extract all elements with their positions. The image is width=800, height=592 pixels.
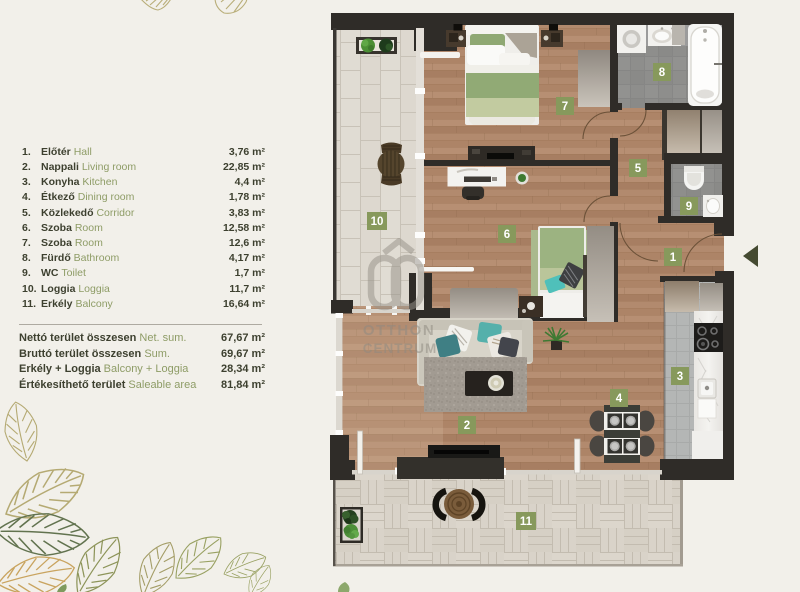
svg-text:CENTRUM: CENTRUM xyxy=(363,341,438,356)
svg-text:10: 10 xyxy=(371,216,384,228)
svg-text:Nettó terület összesen Net. su: Nettó terület összesen Net. sum. xyxy=(19,332,187,344)
svg-text:6.: 6. xyxy=(22,222,31,234)
svg-text:69,67 m²: 69,67 m² xyxy=(221,348,265,360)
svg-text:OTTHON: OTTHON xyxy=(363,322,435,339)
svg-text:7: 7 xyxy=(562,101,568,113)
svg-text:10.: 10. xyxy=(22,283,37,295)
svg-text:Értékesíthető terület Saleable: Értékesíthető terület Saleable area xyxy=(19,378,197,391)
svg-text:12,6 m²: 12,6 m² xyxy=(229,237,266,249)
svg-text:4: 4 xyxy=(616,393,623,405)
svg-text:WC Toilet: WC Toilet xyxy=(41,267,86,279)
svg-text:2: 2 xyxy=(464,420,470,432)
svg-text:Előtér Hall: Előtér Hall xyxy=(41,146,92,158)
svg-text:3,83 m²: 3,83 m² xyxy=(229,207,266,219)
svg-text:Loggia Loggia: Loggia Loggia xyxy=(41,283,110,295)
svg-text:Erkély + Loggia Balcony + Logg: Erkély + Loggia Balcony + Loggia xyxy=(19,363,189,375)
svg-text:3,76 m²: 3,76 m² xyxy=(229,146,266,158)
svg-text:Közlekedő Corridor: Közlekedő Corridor xyxy=(41,207,135,219)
svg-text:Nappali Living room: Nappali Living room xyxy=(41,161,136,173)
svg-text:9.: 9. xyxy=(22,267,31,279)
svg-text:1: 1 xyxy=(670,252,677,264)
svg-text:9: 9 xyxy=(686,201,692,213)
svg-text:67,67 m²: 67,67 m² xyxy=(221,332,265,344)
svg-text:5: 5 xyxy=(635,163,642,175)
svg-text:4.: 4. xyxy=(22,191,31,203)
svg-text:11,7 m²: 11,7 m² xyxy=(229,283,265,295)
svg-text:28,34 m²: 28,34 m² xyxy=(221,363,265,375)
svg-text:Étkező Dining room: Étkező Dining room xyxy=(41,190,135,203)
svg-text:16,64 m²: 16,64 m² xyxy=(223,298,266,310)
svg-text:11: 11 xyxy=(520,516,533,528)
svg-text:1,78 m²: 1,78 m² xyxy=(229,191,266,203)
svg-text:6: 6 xyxy=(504,229,510,241)
svg-text:1,7 m²: 1,7 m² xyxy=(235,267,266,279)
svg-text:7.: 7. xyxy=(22,237,31,249)
svg-text:12,58 m²: 12,58 m² xyxy=(223,222,266,234)
svg-text:8: 8 xyxy=(659,67,666,79)
svg-text:Fürdő Bathroom: Fürdő Bathroom xyxy=(41,252,119,264)
svg-text:3: 3 xyxy=(677,371,683,383)
svg-text:11.: 11. xyxy=(22,298,36,310)
svg-text:8.: 8. xyxy=(22,252,31,264)
svg-text:Szoba Room: Szoba Room xyxy=(41,222,103,234)
svg-text:4,4 m²: 4,4 m² xyxy=(235,176,266,188)
svg-text:Bruttó terület összesen Sum.: Bruttó terület összesen Sum. xyxy=(19,348,170,360)
svg-text:3.: 3. xyxy=(22,176,31,188)
svg-text:Konyha Kitchen: Konyha Kitchen xyxy=(41,176,118,188)
svg-text:Szoba Room: Szoba Room xyxy=(41,237,103,249)
svg-text:5.: 5. xyxy=(22,207,31,219)
svg-text:22,85 m²: 22,85 m² xyxy=(223,161,266,173)
svg-text:4,17 m²: 4,17 m² xyxy=(229,252,266,264)
svg-text:2.: 2. xyxy=(22,161,31,173)
svg-text:1.: 1. xyxy=(22,146,31,158)
svg-text:Erkély Balcony: Erkély Balcony xyxy=(41,298,114,310)
svg-text:81,84 m²: 81,84 m² xyxy=(221,379,265,391)
